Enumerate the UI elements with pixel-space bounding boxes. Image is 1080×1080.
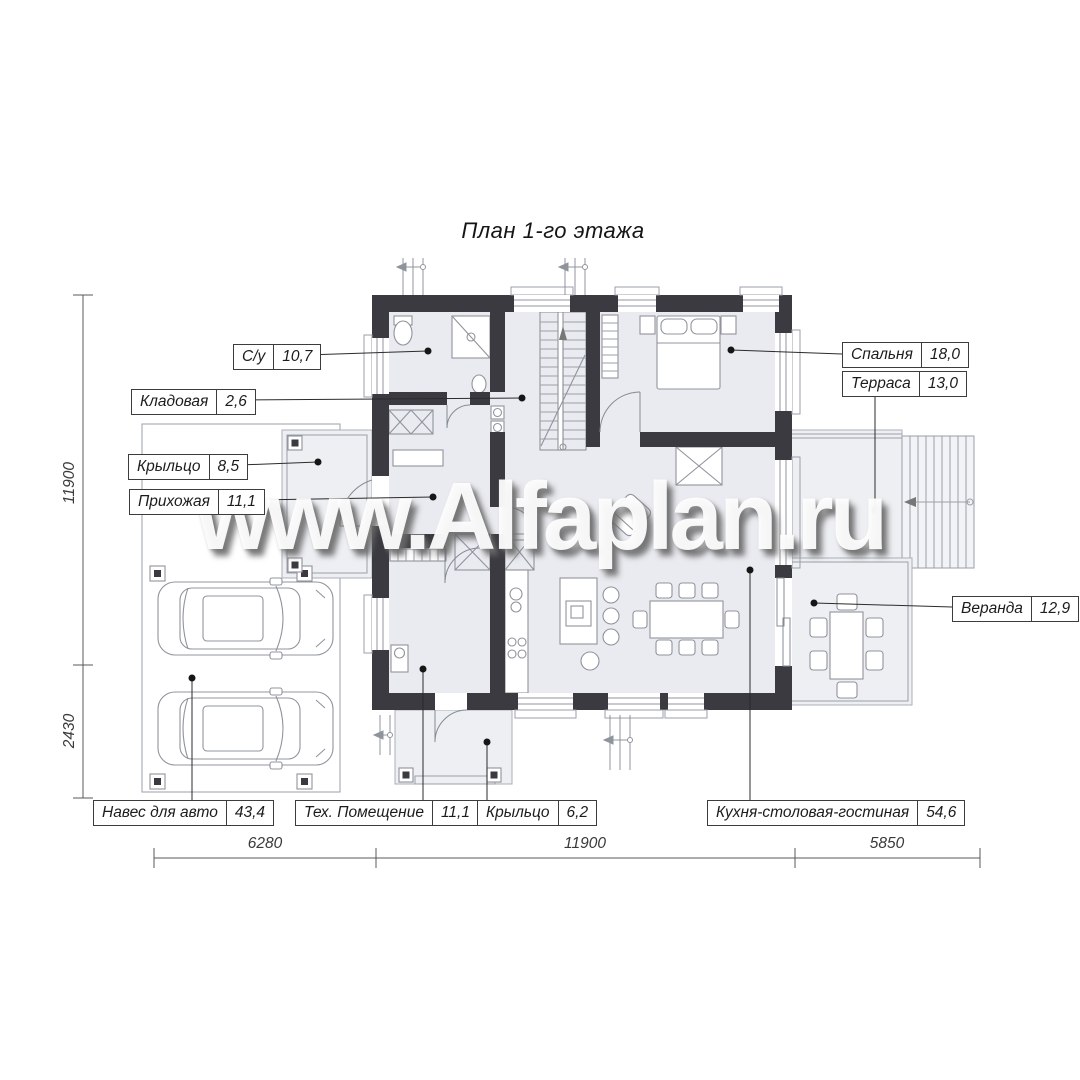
dim-bottom-1: 6280: [248, 835, 282, 853]
watermark: www.Alfaplan.ru: [196, 462, 885, 572]
room-label-kladovaya: Кладовая 2,6: [131, 389, 256, 415]
room-label-area: 11,1: [218, 490, 264, 514]
room-label-area: 8,5: [209, 455, 248, 479]
exterior-stairs: [902, 436, 974, 568]
room-label-naves: Навес для авто 43,4: [93, 800, 274, 826]
dim-left-2: 2430: [61, 714, 79, 748]
room-label-kryltso-bottom: Крыльцо 6,2: [477, 800, 597, 826]
room-label-area: 11,1: [432, 801, 478, 825]
car: [158, 688, 333, 769]
kitchen-counter: [505, 570, 528, 693]
room-label-name: Крыльцо: [478, 801, 558, 825]
tech-room-equipment: [391, 645, 408, 672]
room-label-kuhnya: Кухня-столовая-гостиная 54,6: [707, 800, 965, 826]
room-label-name: Кладовая: [132, 390, 216, 414]
page-title: План 1-го этажа: [461, 218, 644, 244]
car: [158, 578, 333, 659]
dim-left-1: 11900: [61, 462, 79, 504]
room-label-name: Спальня: [843, 343, 921, 367]
room-label-terrasa: Терраса 13,0: [842, 371, 967, 397]
dim-bottom-2: 11900: [564, 835, 606, 853]
floor-plan-page: www.Alfaplan.ru План 1-го этажа С/у 10,7…: [0, 0, 1080, 1080]
room-label-name: Навес для авто: [94, 801, 226, 825]
room-label-area: 13,0: [919, 372, 966, 396]
room-label-name: Веранда: [953, 597, 1031, 621]
room-label-area: 54,6: [917, 801, 964, 825]
room-label-area: 6,2: [558, 801, 597, 825]
room-label-area: 12,9: [1031, 597, 1078, 621]
room-label-name: Прихожая: [130, 490, 218, 514]
room-label-name: Крыльцо: [129, 455, 209, 479]
room-label-teh-pomeshchenie: Тех. Помещение 11,1: [295, 800, 479, 826]
room-label-name: С/у: [234, 345, 273, 369]
room-label-su: С/у 10,7: [233, 344, 321, 370]
dim-bottom-3: 5850: [870, 835, 904, 853]
room-label-name: Терраса: [843, 372, 919, 396]
room-label-name: Тех. Помещение: [296, 801, 432, 825]
room-label-area: 43,4: [226, 801, 273, 825]
room-label-area: 18,0: [921, 343, 968, 367]
room-label-prihozhaya: Прихожая 11,1: [129, 489, 265, 515]
room-label-veranda: Веранда 12,9: [952, 596, 1079, 622]
room-label-spalnya: Спальня 18,0: [842, 342, 969, 368]
room-label-name: Кухня-столовая-гостиная: [708, 801, 917, 825]
room-label-kryltso-left: Крыльцо 8,5: [128, 454, 248, 480]
room-label-area: 10,7: [273, 345, 320, 369]
room-label-area: 2,6: [216, 390, 255, 414]
